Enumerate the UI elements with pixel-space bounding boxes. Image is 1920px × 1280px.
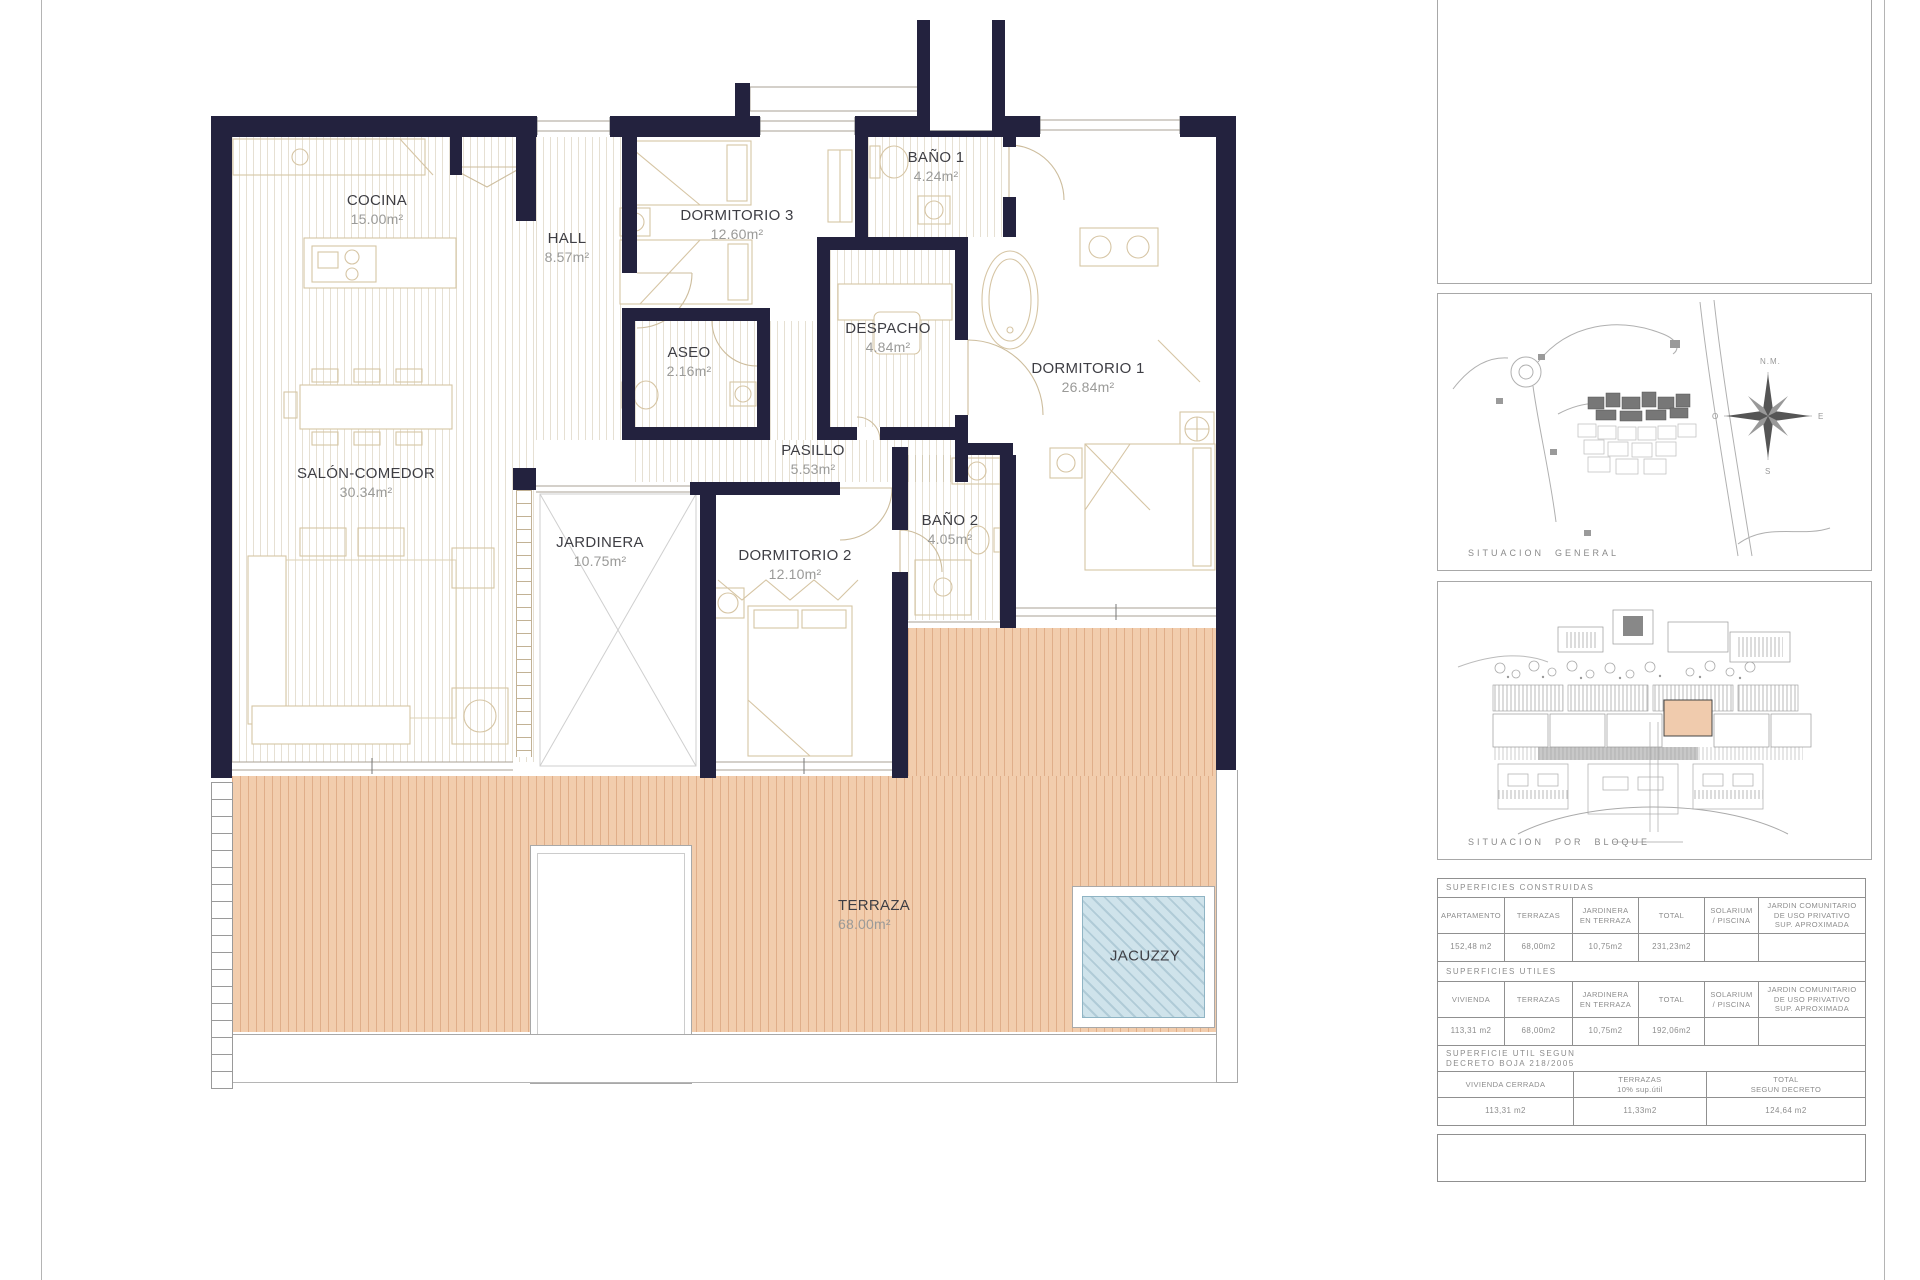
value-cell: 11,33m2 [1573, 1098, 1706, 1125]
table-title-utiles: SUPERFICIES UTILES [1437, 962, 1866, 982]
room-area: 2.16m² [667, 363, 712, 381]
value-cell [1704, 934, 1758, 961]
value-cell: 10,75m2 [1572, 1018, 1638, 1045]
table-value-row: 113,31 m2 11,33m2 124,64 m2 [1437, 1098, 1866, 1126]
room-area: 30.34m² [297, 484, 435, 502]
value-cell: 10,75m2 [1572, 934, 1638, 961]
room-name: DORMITORIO 2 [738, 547, 851, 564]
wall [211, 116, 232, 778]
wall [622, 427, 770, 440]
room-area: 4.84m² [845, 339, 930, 357]
value-cell: 68,00m2 [1504, 1018, 1572, 1045]
header-cell: TOTAL SEGUN DECRETO [1706, 1072, 1865, 1097]
value-cell: 231,23m2 [1638, 934, 1704, 961]
table-title-text: SUPERFICIES UTILES [1446, 967, 1557, 977]
header-cell: TOTAL [1638, 982, 1704, 1017]
wall [955, 443, 1013, 455]
table-empty-row [1437, 1134, 1866, 1182]
panel-top-empty [1437, 0, 1872, 284]
terrace-main [232, 776, 1216, 1032]
room-area: 12.10m² [738, 566, 851, 584]
wall [1003, 197, 1016, 237]
wall [735, 83, 750, 137]
wall [1216, 116, 1236, 770]
wall [622, 308, 770, 321]
compass-o-label: O [1712, 412, 1718, 421]
wall [817, 427, 857, 440]
wall [817, 237, 968, 250]
room-name: JARDINERA [556, 534, 644, 551]
room-name: DORMITORIO 1 [1031, 360, 1144, 377]
site-map: N.M. E S O [1438, 294, 1871, 570]
compass-e-label: E [1818, 412, 1823, 421]
header-cell: TOTAL [1638, 898, 1704, 933]
situacion-por-bloque-label: SITUACION POR BLOQUE [1468, 837, 1650, 847]
room-area: 5.53m² [781, 461, 845, 479]
floor-cocina-salon [232, 137, 536, 762]
room-label-bano1: BAÑO 1 4.24m² [908, 149, 965, 185]
header-cell: TERRAZAS [1504, 898, 1572, 933]
floor-pasillo-v [770, 321, 817, 440]
room-name: HALL [548, 230, 587, 247]
compass-s-label: S [1765, 467, 1770, 476]
room-area: 10.75m² [556, 553, 644, 571]
room-name: BAÑO 1 [908, 149, 965, 166]
header-cell: JARDIN COMUNITARIO DE USO PRIVATIVO SUP.… [1758, 898, 1865, 933]
room-name: COCINA [347, 192, 407, 209]
value-cell [1758, 934, 1865, 961]
floor-hall [536, 137, 622, 440]
room-label-dormitorio1: DORMITORIO 1 26.84m² [1031, 360, 1144, 396]
highlighted-unit [1664, 700, 1712, 736]
shaft-interior [930, 20, 992, 131]
table-header-row: VIVIENDA TERRAZAS JARDINERA EN TERRAZA T… [1437, 982, 1866, 1018]
header-cell: TERRAZAS [1504, 982, 1572, 1017]
wall [757, 321, 770, 427]
table-title-decreto: SUPERFICIE UTIL SEGUN DECRETO BOJA 218/2… [1437, 1046, 1866, 1072]
room-name: SALÓN-COMEDOR [297, 465, 435, 482]
terrace-upper-right [908, 628, 1216, 776]
value-cell: 124,64 m2 [1706, 1098, 1865, 1125]
wall [516, 137, 536, 221]
room-label-cocina: COCINA 15.00m² [347, 192, 407, 228]
value-cell: 113,31 m2 [1438, 1018, 1504, 1045]
room-area: 8.57m² [545, 249, 590, 267]
room-label-dormitorio3: DORMITORIO 3 12.60m² [680, 207, 793, 243]
header-cell: TERRAZAS 10% sup.útil [1573, 1072, 1706, 1097]
wall [700, 482, 716, 778]
stair-strip [211, 782, 233, 1089]
jardinera-rail [516, 490, 532, 757]
table-value-row: 152,48 m2 68,00m2 10,75m2 231,23m2 [1437, 934, 1866, 962]
room-label-aseo: ASEO 2.16m² [667, 344, 712, 380]
sheet-right-border [1884, 0, 1885, 1280]
room-area: 4.24m² [908, 168, 965, 186]
table-value-row: 113,31 m2 68,00m2 10,75m2 192,06m2 [1437, 1018, 1866, 1046]
room-name: DORMITORIO 3 [680, 207, 793, 224]
wall [955, 250, 968, 340]
room-area: 26.84m² [1031, 379, 1144, 397]
header-cell: VIVIENDA CERRADA [1438, 1072, 1573, 1097]
room-name: PASILLO [781, 442, 845, 459]
room-label-dormitorio2: DORMITORIO 2 12.10m² [738, 547, 851, 583]
terrace-right-band [1216, 770, 1238, 1083]
compass-n-label: N.M. [1760, 357, 1781, 366]
terrace-edge-band2 [232, 1048, 1216, 1083]
panel-situacion-por-bloque: SITUACION POR BLOQUE [1437, 581, 1872, 860]
floor-plan-sheet: { "plan": { "rooms": [ {"name":"COCINA",… [0, 0, 1920, 1280]
room-label-hall: HALL 8.57m² [545, 230, 590, 266]
wall [450, 137, 462, 175]
wall [513, 468, 536, 490]
table-header-row: VIVIENDA CERRADA TERRAZAS 10% sup.útil T… [1437, 1072, 1866, 1098]
wall-shaft-right [992, 20, 1005, 137]
wall [855, 137, 868, 237]
room-area: 4.05m² [922, 531, 979, 549]
wall-shaft-left [917, 20, 930, 137]
room-label-despacho: DESPACHO 4.84m² [845, 320, 930, 356]
wall [892, 447, 908, 530]
wall [817, 250, 830, 440]
wall [622, 137, 637, 273]
surface-tables: SUPERFICIES CONSTRUIDAS APARTAMENTO TERR… [1437, 878, 1866, 1182]
room-label-salon-comedor: SALÓN-COMEDOR 30.34m² [297, 465, 435, 501]
wall [892, 572, 908, 778]
situacion-general-label: SITUACION GENERAL [1468, 548, 1619, 558]
block-map [1438, 582, 1871, 859]
room-name: ASEO [668, 344, 711, 361]
value-cell: 113,31 m2 [1438, 1098, 1573, 1125]
value-cell [1758, 1018, 1865, 1045]
room-label-terraza: TERRAZA 68.00m² [838, 897, 910, 933]
room-area: 12.60m² [680, 226, 793, 244]
wall [622, 321, 635, 440]
room-label-jardinera: JARDINERA 10.75m² [556, 534, 644, 570]
room-label-pasillo: PASILLO 5.53m² [781, 442, 845, 478]
floor-plan: COCINA 15.00m² HALL 8.57m² DORMITORIO 3 … [0, 0, 1280, 1280]
room-area: 68.00m² [838, 916, 910, 934]
header-cell: APARTAMENTO [1438, 898, 1504, 933]
header-cell: SOLARIUM / PISCINA [1704, 898, 1758, 933]
wall [211, 116, 537, 137]
room-area: 15.00m² [347, 211, 407, 229]
panel-situacion-general: N.M. E S O SITUACION GENERAL [1437, 293, 1872, 571]
header-cell: JARDINERA EN TERRAZA [1572, 982, 1638, 1017]
room-name: TERRAZA [838, 897, 910, 914]
table-title-text: SUPERFICIE UTIL SEGUN DECRETO BOJA 218/2… [1446, 1049, 1575, 1069]
value-cell [1704, 1018, 1758, 1045]
value-cell: 68,00m2 [1504, 934, 1572, 961]
room-label-bano2: BAÑO 2 4.05m² [922, 512, 979, 548]
header-cell: JARDIN COMUNITARIO DE USO PRIVATIVO SUP.… [1758, 982, 1865, 1017]
header-cell: SOLARIUM / PISCINA [1704, 982, 1758, 1017]
room-name: BAÑO 2 [922, 512, 979, 529]
wall [1003, 137, 1016, 147]
jacuzzi-label: JACUZZY [1110, 948, 1180, 965]
value-cell: 192,06m2 [1638, 1018, 1704, 1045]
header-cell: JARDINERA EN TERRAZA [1572, 898, 1638, 933]
room-name: DESPACHO [845, 320, 930, 337]
table-header-row: APARTAMENTO TERRAZAS JARDINERA EN TERRAZ… [1437, 898, 1866, 934]
table-title-construidas: SUPERFICIES CONSTRUIDAS [1437, 878, 1866, 898]
value-cell: 152,48 m2 [1438, 934, 1504, 961]
header-cell: VIVIENDA [1438, 982, 1504, 1017]
wall [1000, 455, 1016, 628]
table-title-text: SUPERFICIES CONSTRUIDAS [1446, 883, 1594, 893]
